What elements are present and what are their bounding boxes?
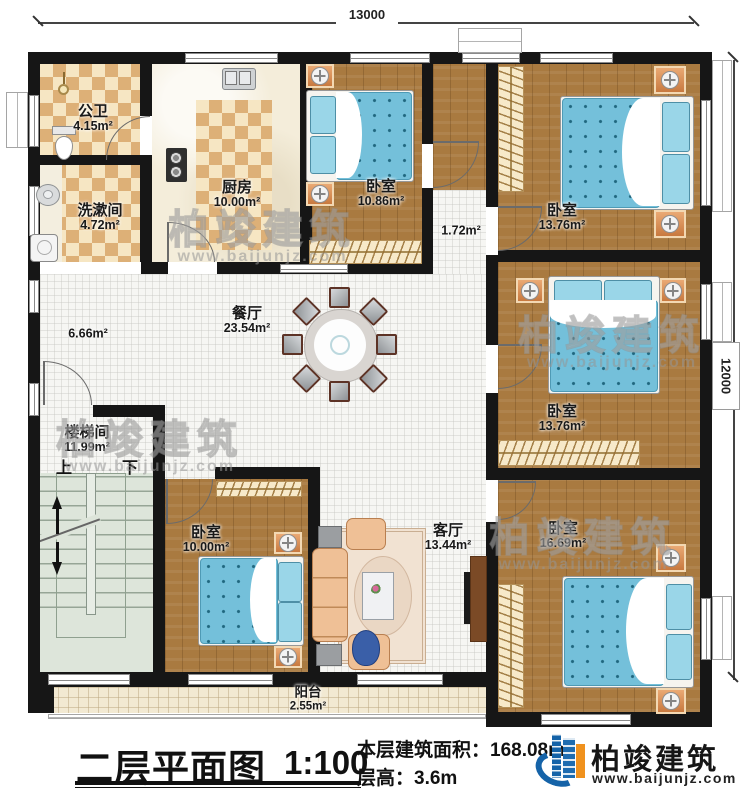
- wall-left: [28, 52, 40, 690]
- wall-bath-kitchen-b: [140, 160, 152, 274]
- stair-divider: [86, 473, 96, 615]
- door-bedroom-botright-leaf: [498, 481, 536, 483]
- stair-down-label: 下: [122, 454, 138, 478]
- window-left-hall-2: [29, 383, 39, 416]
- title-underline-thick: [75, 781, 361, 785]
- wall-bedroom-topmid-right-a: [422, 52, 433, 144]
- floor-balcony: [48, 687, 486, 713]
- window-sill-right-mid: [712, 282, 732, 342]
- dimension-tick: [688, 15, 699, 26]
- wardrobe: [309, 240, 422, 264]
- pillow: [310, 136, 336, 174]
- pillow: [662, 154, 690, 204]
- person-figure: [352, 630, 380, 666]
- lamp-icon: [662, 692, 680, 710]
- coffee-table-flowers: [371, 584, 384, 597]
- nightstand: [654, 210, 686, 238]
- dimension-top-value: 13000: [336, 7, 398, 24]
- pillow: [666, 634, 692, 680]
- room-label-washroom: 洗漱间4.72m²: [77, 203, 122, 233]
- floor-height-value: 3.6m: [414, 768, 457, 789]
- window-bottom-stairwell: [48, 674, 130, 685]
- stair-arrow-up-stem: [56, 508, 59, 534]
- door-bedroom-botleft-leaf: [166, 479, 168, 524]
- window-right-bedroom-botright: [701, 598, 711, 660]
- window-bottom-bedroom-botright: [541, 714, 631, 725]
- window-top-bedroom-topright: [540, 53, 613, 63]
- washing-machine-door: [37, 240, 52, 255]
- room-label-corridor: 1.72m²: [441, 224, 481, 238]
- room-label-bedroom-midright: 卧室13.76m²: [539, 404, 586, 434]
- dimension-tick: [32, 15, 43, 26]
- wall-kitchen-bottom-a: [140, 262, 168, 274]
- bay-window-sill-top: [458, 28, 522, 53]
- dining-table-center: [330, 335, 350, 355]
- logo-building-icon: [576, 744, 585, 778]
- nightstand: [656, 688, 686, 714]
- wall-spine-c: [486, 393, 498, 480]
- lamp-icon: [279, 648, 297, 666]
- window-left-hall-1: [29, 280, 39, 313]
- wall-spine-d: [486, 522, 498, 727]
- pillow: [278, 562, 302, 602]
- dining-chair: [329, 381, 350, 402]
- window-sill-right-top: [712, 60, 732, 212]
- title-underline-thin: [75, 787, 361, 788]
- tv-screen: [464, 572, 470, 624]
- dining-chair: [329, 287, 350, 308]
- balcony-corner-pillar: [28, 683, 54, 713]
- room-label-kitchen: 厨房10.00m²: [214, 180, 261, 210]
- kitchen-island: [196, 100, 272, 250]
- window-right-bedroom-midright: [701, 284, 711, 340]
- room-label-bedroom-topright: 卧室13.76m²: [539, 203, 586, 233]
- wardrobe: [498, 66, 524, 192]
- logo-building-icon: [563, 738, 575, 778]
- floor-plan-canvas: 公卫4.15m² 洗漱间4.72m² 厨房10.00m² 卧室10.86m² 1…: [0, 0, 750, 802]
- floor-height-label: 层高：: [357, 768, 414, 789]
- room-label-bedroom-botleft: 卧室10.00m²: [183, 525, 230, 555]
- side-table: [316, 644, 342, 666]
- plan-scale: 1:100: [284, 744, 368, 782]
- lamp-icon: [521, 282, 539, 300]
- lamp-icon: [661, 71, 679, 89]
- kitchen-sink-basin: [225, 71, 237, 85]
- pillow: [278, 602, 302, 642]
- room-label-bedroom-topmid: 卧室10.86m²: [358, 179, 405, 209]
- brand-logo: 柏竣建筑 www.baijunjz.com: [533, 728, 745, 798]
- wall-spine-b: [486, 255, 498, 345]
- lamp-icon: [662, 549, 680, 567]
- room-label-bathroom: 公卫4.15m²: [73, 104, 113, 134]
- balcony-outer-rail: [48, 714, 486, 719]
- ceiling-lamp-cord: [63, 72, 65, 84]
- stair-up-label: 上: [56, 454, 72, 478]
- nightstand: [516, 278, 544, 303]
- room-label-hall: 6.66m²: [68, 327, 108, 341]
- window-left-bathroom: [29, 95, 39, 147]
- lamp-icon: [661, 215, 679, 233]
- pillow: [666, 584, 692, 630]
- wall-stair-right: [153, 405, 165, 672]
- wall-right-bedrooms-1: [498, 250, 700, 262]
- nightstand: [274, 532, 302, 554]
- bed-sheet: [626, 578, 664, 684]
- room-label-living: 客厅13.44m²: [425, 523, 472, 553]
- window-sill-right-bottom: [712, 596, 732, 660]
- stair-arrow-down: [52, 562, 62, 575]
- room-label-balcony: 阳台2.55m²: [290, 686, 326, 713]
- sofa-long: [312, 548, 348, 642]
- dimension-right-value: 12000: [712, 342, 740, 410]
- floor-height-row: 层高：3.6m: [357, 763, 457, 790]
- door-bedroom-topright-leaf: [498, 206, 542, 208]
- armchair: [346, 518, 386, 550]
- nightstand: [654, 66, 686, 94]
- ceiling-lamp: [58, 84, 69, 95]
- door-stairwell-leaf: [43, 361, 45, 405]
- washroom-door-opening: [95, 262, 141, 274]
- nightstand: [660, 278, 686, 303]
- nightstand: [274, 646, 302, 668]
- logo-building-icon: [552, 734, 561, 778]
- wardrobe: [498, 584, 524, 708]
- room-label-dining: 餐厅23.54m²: [224, 306, 271, 336]
- lamp-icon: [664, 282, 682, 300]
- wall-bath-kitchen-a: [140, 52, 152, 116]
- floor-area-label: 本层建筑面积：: [357, 740, 490, 761]
- stove-burner: [170, 152, 182, 164]
- dining-chair: [376, 334, 397, 355]
- wardrobe: [498, 440, 640, 466]
- window-top-bay: [462, 53, 520, 63]
- lamp-icon: [311, 67, 329, 85]
- door-kitchen-leaf: [167, 222, 169, 262]
- stove-burner: [170, 166, 182, 178]
- door-bedroom-midright-leaf: [498, 344, 542, 346]
- wall-spine-a: [486, 52, 498, 207]
- wall-bedroom-topmid-right-b: [422, 188, 433, 274]
- room-label-bedroom-botright: 卧室16.69m²: [540, 521, 587, 551]
- window-sill-left: [6, 92, 28, 148]
- side-table: [318, 526, 342, 548]
- wardrobe: [216, 481, 302, 497]
- wash-basin-drain: [43, 190, 53, 199]
- door-bedroom-topmid-leaf: [433, 141, 479, 143]
- stair-arrow-down-stem: [56, 542, 59, 564]
- bed-sheet: [550, 300, 656, 328]
- bed-sheet: [622, 98, 660, 206]
- bed-sheet: [250, 558, 276, 642]
- pillow: [310, 96, 336, 134]
- nightstand: [656, 544, 686, 572]
- kitchen-sink-basin: [239, 71, 251, 85]
- pillow: [662, 102, 690, 152]
- wall-right-bedrooms-2: [498, 468, 700, 480]
- wall-bedroom-botleft-top: [215, 467, 320, 479]
- window-right-bedroom-topright: [701, 100, 711, 206]
- window-top-bedroom-topmid: [350, 53, 430, 63]
- nightstand: [306, 64, 334, 88]
- lamp-icon: [311, 185, 329, 203]
- brand-site: www.baijunjz.com: [592, 770, 737, 786]
- room-label-stairwell: 楼梯间11.99m²: [64, 425, 110, 455]
- balcony-sliding-door: [357, 674, 443, 685]
- window-top-kitchen: [185, 53, 278, 63]
- kitchen-serving-window: [280, 264, 348, 273]
- tv-cabinet: [470, 556, 487, 642]
- dining-chair: [282, 334, 303, 355]
- nightstand: [306, 182, 334, 206]
- window-bottom-bedroom-botleft: [188, 674, 273, 685]
- lamp-icon: [279, 534, 297, 552]
